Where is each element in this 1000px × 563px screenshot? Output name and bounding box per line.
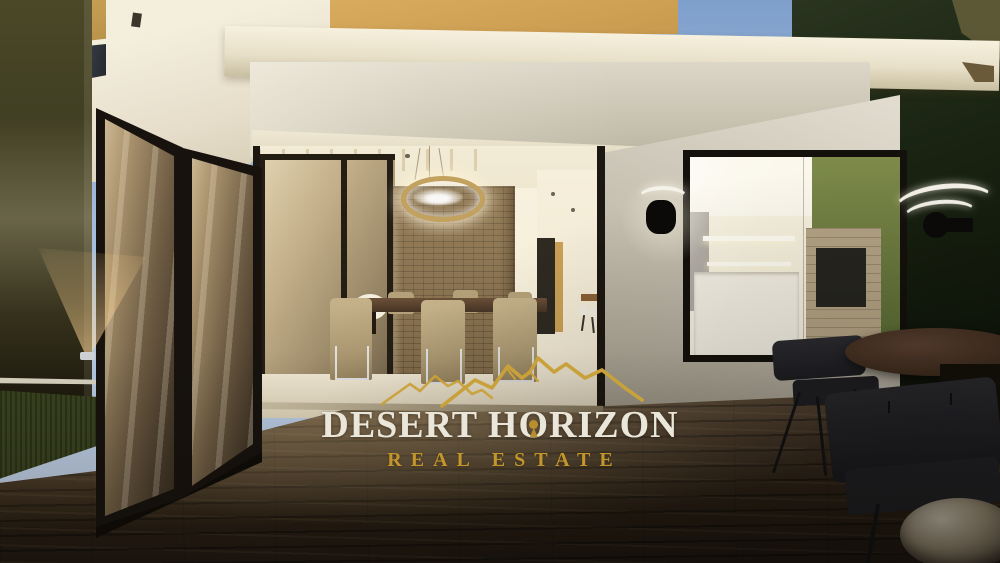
bench-stitch <box>950 393 952 405</box>
sconce-body <box>646 200 676 234</box>
stool-leg <box>581 315 585 331</box>
dining-chair <box>330 298 372 380</box>
brand-subtitle: REAL ESTATE <box>250 449 750 472</box>
ring-chandelier <box>401 176 485 222</box>
wall-sconce-left <box>636 182 688 240</box>
watermark: DESERT HORIZON REAL ESTATE <box>250 406 750 472</box>
chair-leg <box>772 392 801 474</box>
wall-sconce-right <box>895 176 995 248</box>
brand-title: DESERT HORIZON <box>250 406 750 444</box>
real-estate-render: DESERT HORIZON REAL ESTATE <box>0 0 1000 563</box>
bench-stitch <box>888 401 890 413</box>
chandelier-glow <box>413 189 463 205</box>
uplight-fixture <box>80 352 95 360</box>
hallway-tan-door <box>555 242 563 332</box>
sconce-bracket <box>947 218 973 232</box>
brand-title-o: O <box>518 406 549 444</box>
bar-stool <box>579 306 587 315</box>
slider-track <box>253 154 395 160</box>
glass-reflection <box>690 157 900 355</box>
olive-side-wall <box>0 0 92 420</box>
chandelier-wire <box>429 146 430 180</box>
hall-spotlight <box>551 192 555 196</box>
bar-stool <box>589 308 597 317</box>
hallway-door <box>537 238 555 334</box>
ceiling-spotlight <box>405 154 410 158</box>
stool-leg <box>591 317 595 333</box>
chrome-chair-leg <box>335 346 369 381</box>
hall-spotlight <box>571 208 575 212</box>
sconce-body <box>923 212 949 238</box>
wall-fixture-detail <box>131 12 142 27</box>
mountain-logo-icon <box>380 350 650 412</box>
